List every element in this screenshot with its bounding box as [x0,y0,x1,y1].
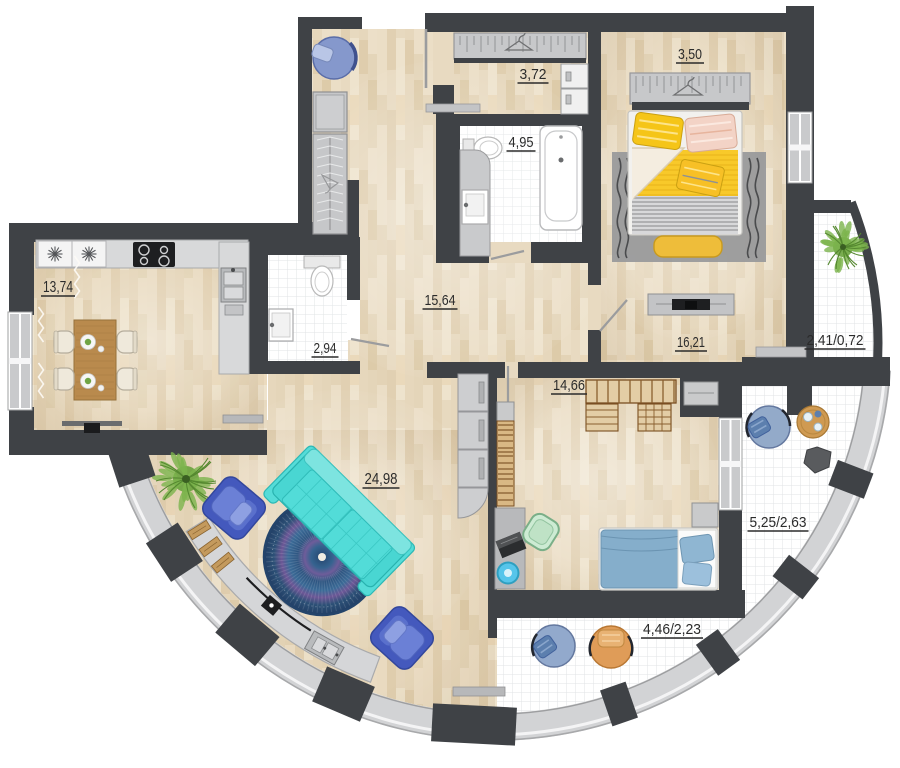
svg-text:24,98: 24,98 [365,471,398,488]
svg-text:16,21: 16,21 [677,334,705,351]
svg-text:2,94: 2,94 [314,340,337,357]
svg-text:3,72: 3,72 [520,66,547,83]
svg-text:4,46/2,23: 4,46/2,23 [643,621,701,638]
svg-text:4,95: 4,95 [509,134,534,151]
svg-text:13,74: 13,74 [43,279,73,296]
svg-text:15,64: 15,64 [425,292,456,309]
svg-text:2,41/0,72: 2,41/0,72 [807,332,864,349]
svg-text:3,50: 3,50 [678,46,702,63]
svg-text:5,25/2,63: 5,25/2,63 [750,514,807,531]
svg-text:14,66: 14,66 [553,377,585,394]
